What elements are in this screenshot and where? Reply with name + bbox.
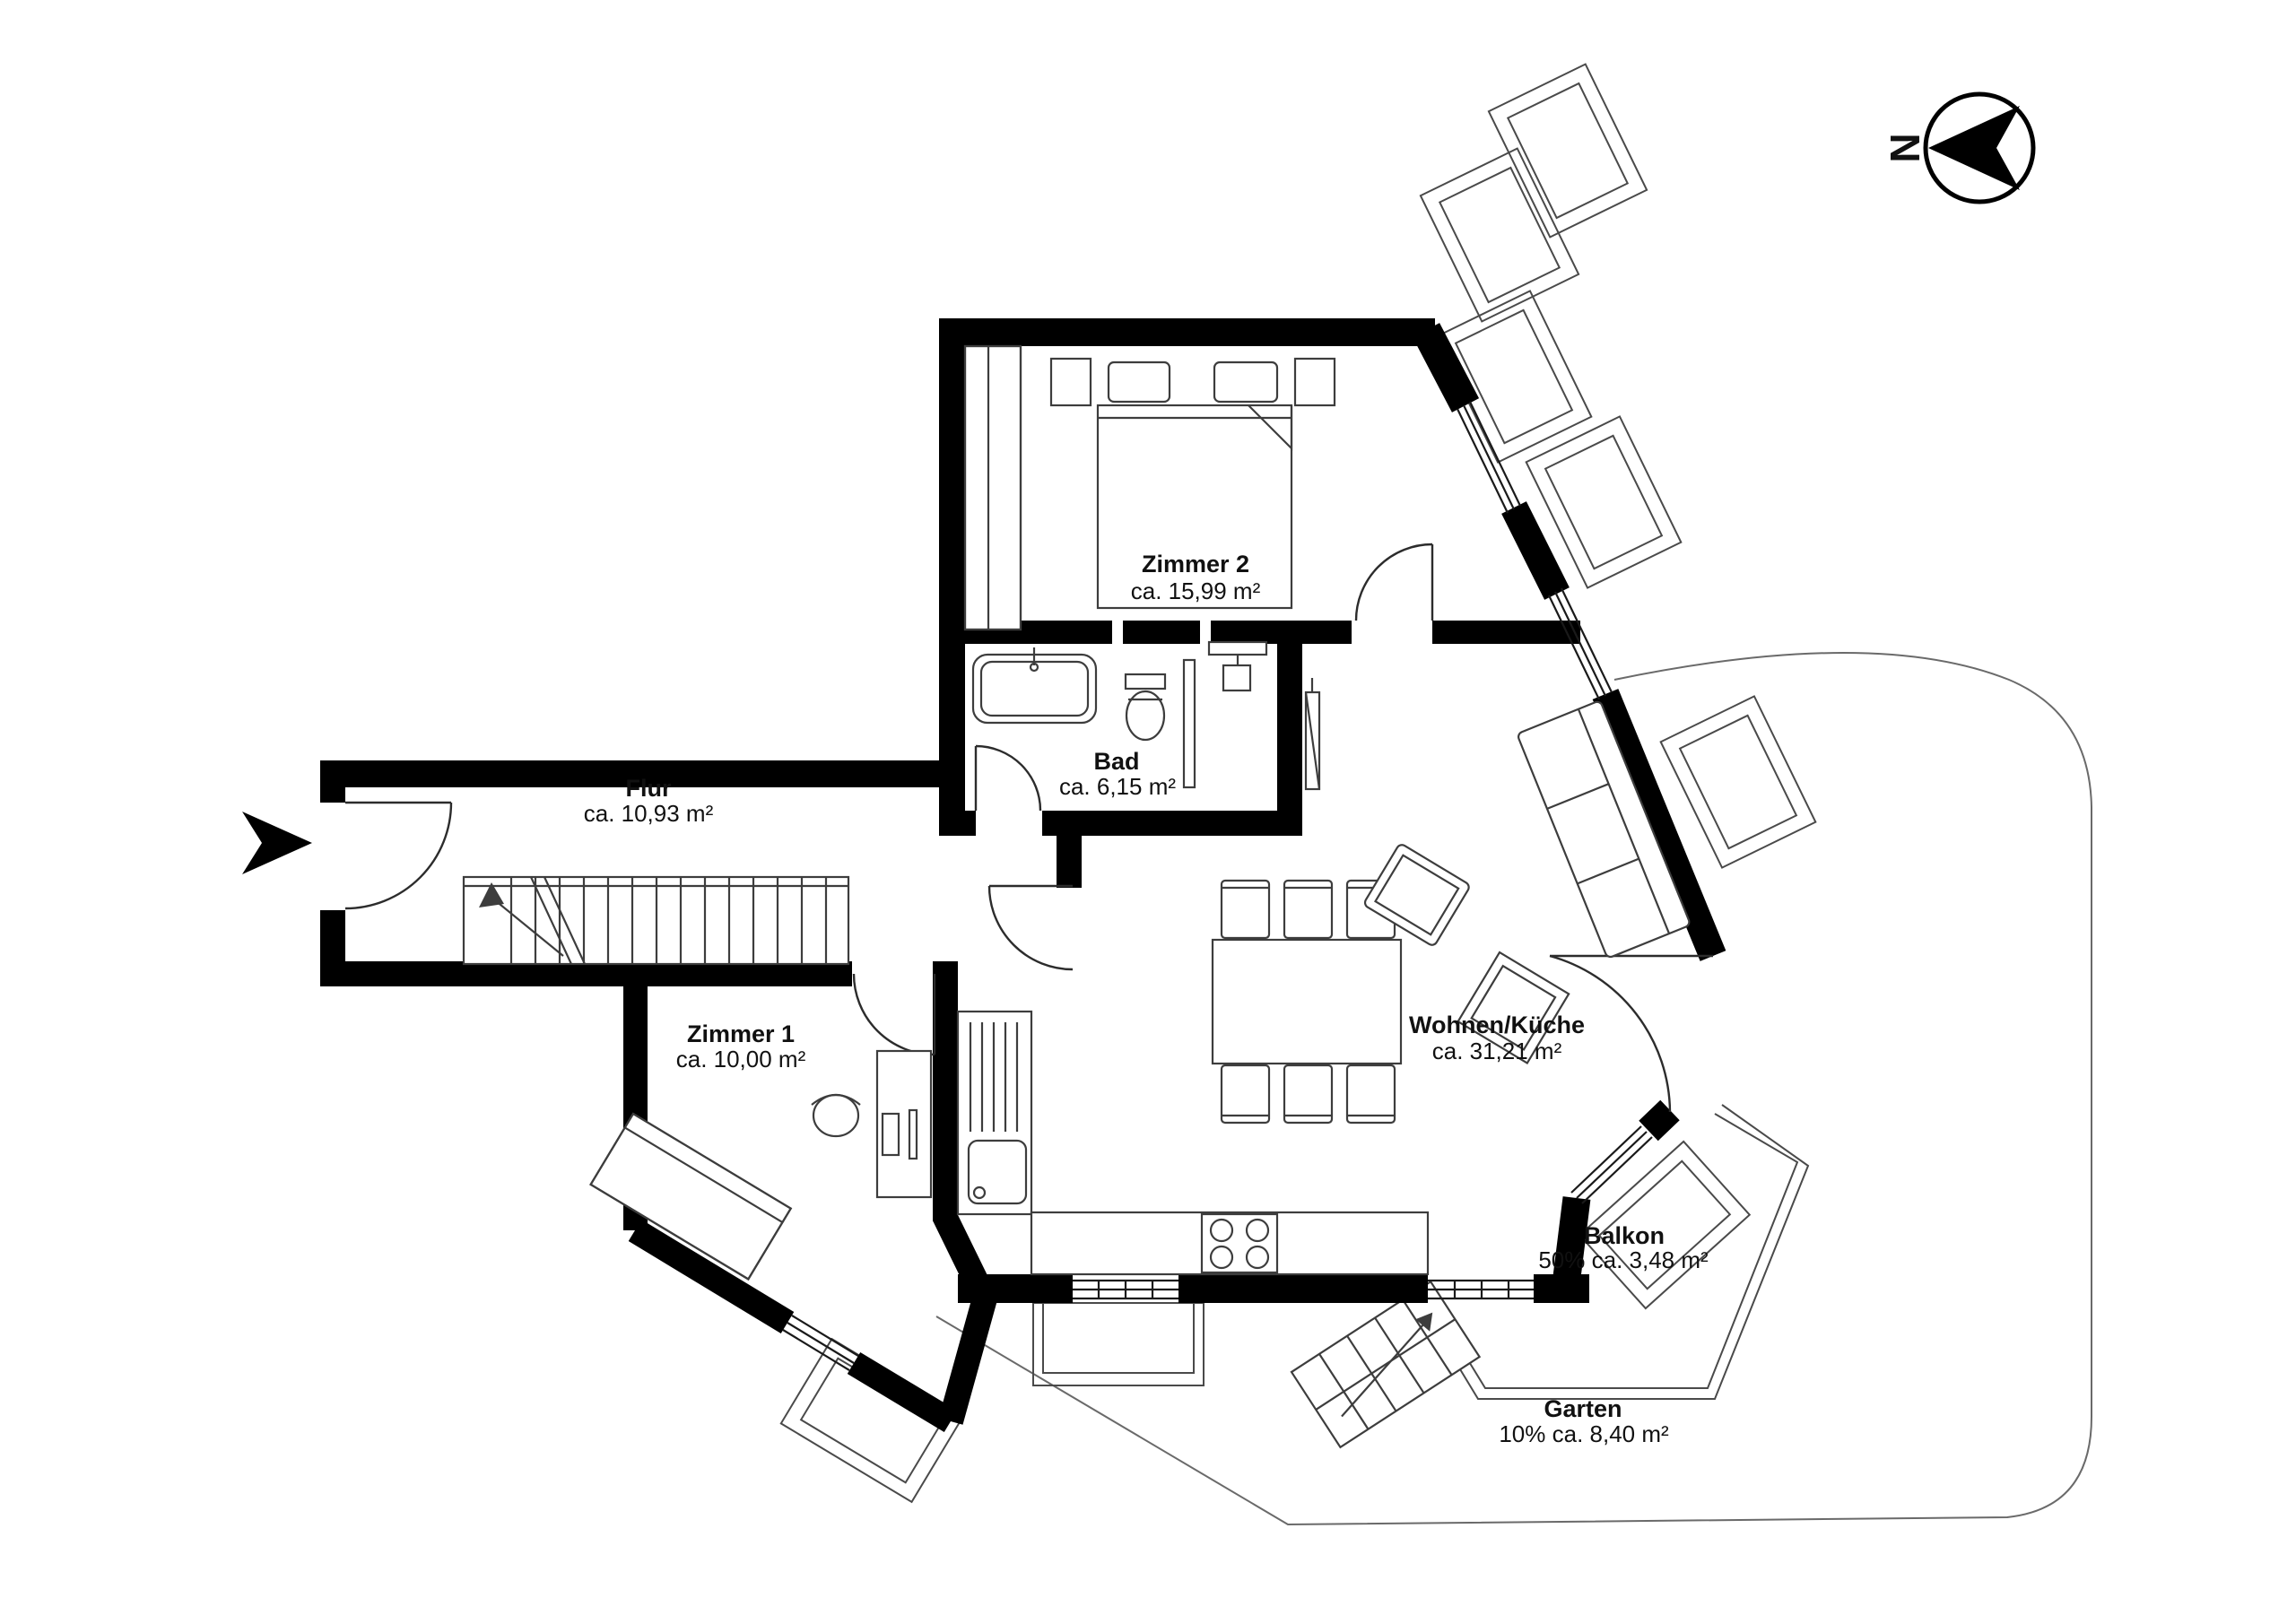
desk [877, 1051, 931, 1197]
bad-partition-wall [1184, 660, 1195, 787]
room-area-zimmer2: ca. 15,99 m² [1131, 578, 1261, 604]
room-name-garten: Garten [1544, 1395, 1622, 1422]
stove [1202, 1214, 1277, 1272]
room-name-zimmer2: Zimmer 2 [1142, 551, 1249, 578]
pillow-left [1109, 362, 1170, 402]
room-name-bad: Bad [1093, 748, 1139, 775]
room-area-flur: ca. 10,93 m² [584, 800, 714, 827]
north-label: N [1882, 133, 1928, 162]
toilet [1126, 674, 1165, 740]
room-name-flur: Flur [626, 775, 672, 802]
floor-plan-svg: Zimmer 2 ca. 15,99 m² Bad ca. 6,15 m² Fl… [0, 0, 2296, 1624]
dining-table [1213, 940, 1401, 1064]
room-area-zimmer1: ca. 10,00 m² [676, 1046, 806, 1073]
desk-chair [812, 1095, 860, 1136]
room-name-balkon: Balkon [1584, 1222, 1665, 1249]
room-name-wohnen: Wohnen/Küche [1409, 1012, 1585, 1038]
nightstand-left [1051, 359, 1091, 405]
room-name-zimmer1: Zimmer 1 [687, 1020, 795, 1047]
dining-chairs-bottom [1222, 1065, 1395, 1123]
keyboard [883, 1114, 899, 1155]
room-area-wohnen: ca. 31,21 m² [1432, 1038, 1562, 1064]
bathtub [973, 647, 1096, 723]
kitchen-sink [969, 1141, 1026, 1203]
nightstand-right [1295, 359, 1335, 405]
wardrobe-zimmer2 [965, 346, 1021, 630]
room-area-garten: 10% ca. 8,40 m² [1499, 1420, 1669, 1447]
radiator-living [1306, 678, 1319, 789]
staircase [464, 877, 848, 964]
room-area-bad: ca. 6,15 m² [1059, 773, 1176, 800]
pillow-right [1214, 362, 1277, 402]
floor-plan-page: Zimmer 2 ca. 15,99 m² Bad ca. 6,15 m² Fl… [0, 0, 2296, 1624]
dining-set [1213, 881, 1401, 1123]
room-area-balkon: 50% ca. 3,48 m² [1538, 1246, 1709, 1273]
monitor [909, 1110, 917, 1159]
dining-chairs-top [1222, 881, 1395, 938]
